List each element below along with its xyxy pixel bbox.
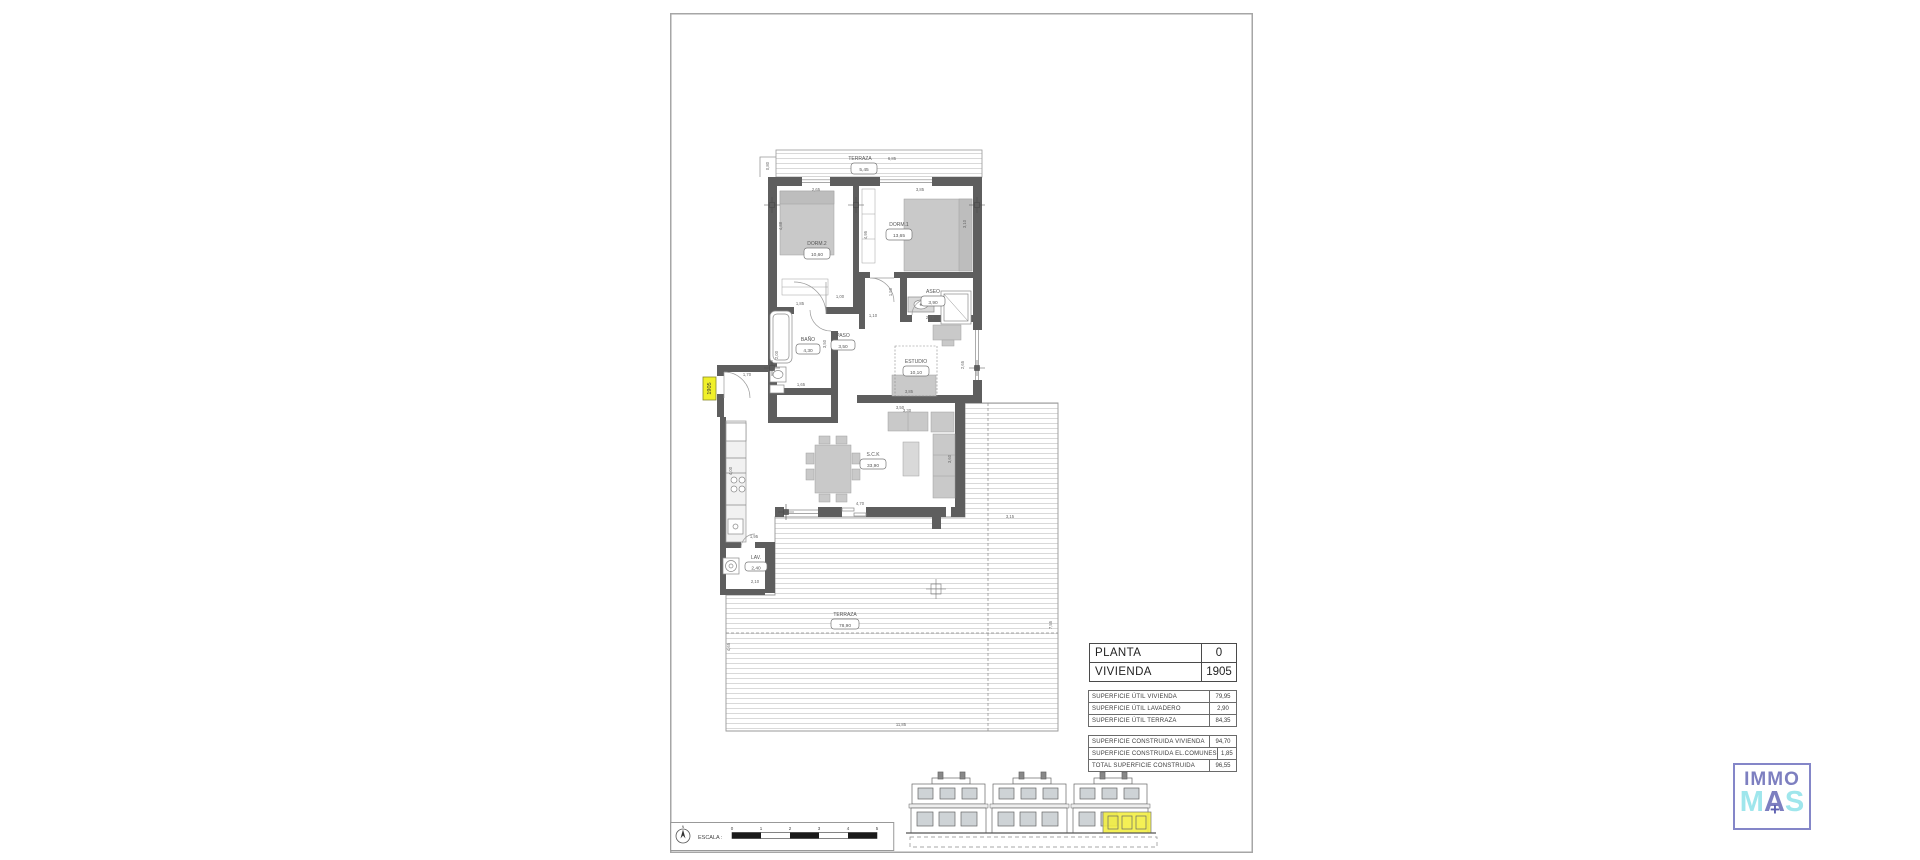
table-row: SUPERFICIE ÚTIL TERRAZA 84,35 xyxy=(1089,714,1236,726)
dim: 2,00 xyxy=(774,350,779,359)
dim: 6,85 xyxy=(888,156,897,161)
dim: 11,85 xyxy=(896,722,907,727)
fridge xyxy=(726,423,746,441)
table-row: TOTAL SUPERFICIE CONSTRUIDA 96,55 xyxy=(1089,759,1236,771)
dim: 1,95 xyxy=(750,534,759,539)
dim: 4,00 xyxy=(728,466,733,475)
dim: 3,85 xyxy=(905,389,914,394)
room-estudio-area: 10,10 xyxy=(910,370,922,376)
unit-tag-label: 1905 xyxy=(707,382,713,394)
row-label: SUPERFICIE CONSTRUIDA EL.COMUNES xyxy=(1089,751,1217,757)
vivienda-label: VIVIENDA xyxy=(1090,666,1201,678)
room-sck-area: 33,90 xyxy=(867,463,879,469)
room-terraza-area: 78,90 xyxy=(839,623,851,629)
room-dorm2-name: DORM.2 xyxy=(807,241,827,247)
surface-table-util: SUPERFICIE ÚTIL VIVIENDA 79,95 SUPERFICI… xyxy=(1088,690,1237,727)
row-label: TOTAL SUPERFICIE CONSTRUIDA xyxy=(1089,763,1209,769)
dim: 3,50 xyxy=(896,405,905,410)
row-label: SUPERFICIE CONSTRUIDA VIVIENDA xyxy=(1089,739,1209,745)
room-aseo-area: 3,90 xyxy=(928,300,938,306)
surface-table-construida: SUPERFICIE CONSTRUIDA VIVIENDA 94,70 SUP… xyxy=(1088,735,1237,772)
side-table xyxy=(903,442,919,476)
dim: 4,70 xyxy=(856,501,865,506)
closet-dorm1 xyxy=(862,189,875,263)
planta-label: PLANTA xyxy=(1090,647,1201,659)
dim: 3,60 xyxy=(947,454,952,463)
dim: 2,65 xyxy=(960,360,965,369)
dim: 1,50 xyxy=(888,287,893,296)
room-terraza-name: TERRAZA xyxy=(833,612,857,618)
sofa-estudio xyxy=(892,375,936,396)
dim: 3,50 xyxy=(822,339,827,348)
row-value: 84,35 xyxy=(1209,715,1236,726)
room-dorm1-area: 13,65 xyxy=(893,233,905,239)
dim: 3,85 xyxy=(916,187,925,192)
row-label: SUPERFICIE ÚTIL TERRAZA xyxy=(1089,718,1209,724)
table-row: SUPERFICIE CONSTRUIDA EL.COMUNES 1,85 xyxy=(1089,747,1236,759)
dim: 1,85 xyxy=(796,301,805,306)
title-block: PLANTA 0 VIVIENDA 1905 xyxy=(1089,643,1237,682)
armchair xyxy=(931,412,954,432)
title-block-row-vivienda: VIVIENDA 1905 xyxy=(1090,662,1236,681)
dim: 4,88 xyxy=(778,221,783,230)
dim: 4,95 xyxy=(863,230,868,239)
scale-bar: N ESCALA : 0 1 2 3 4 5 xyxy=(671,823,894,851)
plan-sheet-page: 1905 TERRAZA 5,45 DORM.2 10,60 DORM.1 13… xyxy=(0,0,1920,860)
dim: 3,30 xyxy=(903,408,912,413)
row-label: SUPERFICIE ÚTIL LAVADERO xyxy=(1089,706,1209,712)
unit-tag: 1905 xyxy=(703,377,716,400)
room-lav-area: 2,40 xyxy=(751,566,761,572)
row-value: 96,55 xyxy=(1209,760,1236,771)
dim: 1,65 xyxy=(797,382,806,387)
room-sck-name: S.C.K xyxy=(866,452,880,458)
room-lav-name: LAV. xyxy=(751,555,761,561)
room-terraza-top-name: TERRAZA xyxy=(848,156,872,162)
planta-value: 0 xyxy=(1201,644,1236,662)
dim: 4,65 xyxy=(726,642,731,651)
room-dorm1-name: DORM.1 xyxy=(889,222,909,228)
logo-plus-icon: + xyxy=(1770,800,1780,820)
dim: 3,15 xyxy=(1006,514,1015,519)
logo-letter-m: M xyxy=(1740,786,1764,818)
dim: 1,70 xyxy=(743,372,752,377)
dim: 7,55 xyxy=(1048,620,1053,629)
dim: 2,10 xyxy=(751,579,760,584)
row-value: 2,90 xyxy=(1209,703,1236,714)
logo-letter-s: S xyxy=(1785,786,1804,818)
dim: 3,10 xyxy=(962,219,967,228)
dim: 2,65 xyxy=(812,187,821,192)
room-aseo-name: ASEO xyxy=(926,289,940,295)
row-value: 1,85 xyxy=(1217,748,1236,759)
sofa-right xyxy=(933,434,955,498)
dim: 1,10 xyxy=(869,313,878,318)
row-label: SUPERFICIE ÚTIL VIVIENDA xyxy=(1089,694,1209,700)
vivienda-value: 1905 xyxy=(1201,663,1236,681)
title-block-row-planta: PLANTA 0 xyxy=(1090,644,1236,662)
row-value: 94,70 xyxy=(1209,736,1236,747)
room-terraza-top-area: 5,45 xyxy=(859,167,869,173)
floor-plan-svg: 1905 TERRAZA 5,45 DORM.2 10,60 DORM.1 13… xyxy=(670,13,1253,853)
table-row: SUPERFICIE ÚTIL LAVADERO 2,90 xyxy=(1089,702,1236,714)
dining-table xyxy=(815,445,851,493)
table-row: SUPERFICIE ÚTIL VIVIENDA 79,95 xyxy=(1089,691,1236,702)
immomas-logo: IMMO MAS + xyxy=(1733,763,1811,830)
hob xyxy=(731,477,737,483)
room-bano-area: 4,30 xyxy=(803,348,813,354)
row-value: 79,95 xyxy=(1209,691,1236,702)
highlighted-unit xyxy=(1103,812,1151,833)
room-dorm2-area: 10,60 xyxy=(811,252,823,258)
room-paso-area: 3,50 xyxy=(838,344,848,350)
scale-label: ESCALA : xyxy=(698,835,723,841)
table-row: SUPERFICIE CONSTRUIDA VIVIENDA 94,70 xyxy=(1089,736,1236,747)
room-paso-name: PASO xyxy=(836,333,850,339)
room-bano-name: BAÑO xyxy=(801,336,815,343)
dim: 2,70 xyxy=(926,315,935,320)
dim: 1,00 xyxy=(836,294,845,299)
desk-estudio xyxy=(933,325,961,340)
room-estudio-name: ESTUDIO xyxy=(905,359,927,365)
dim: 0,80 xyxy=(765,161,770,170)
